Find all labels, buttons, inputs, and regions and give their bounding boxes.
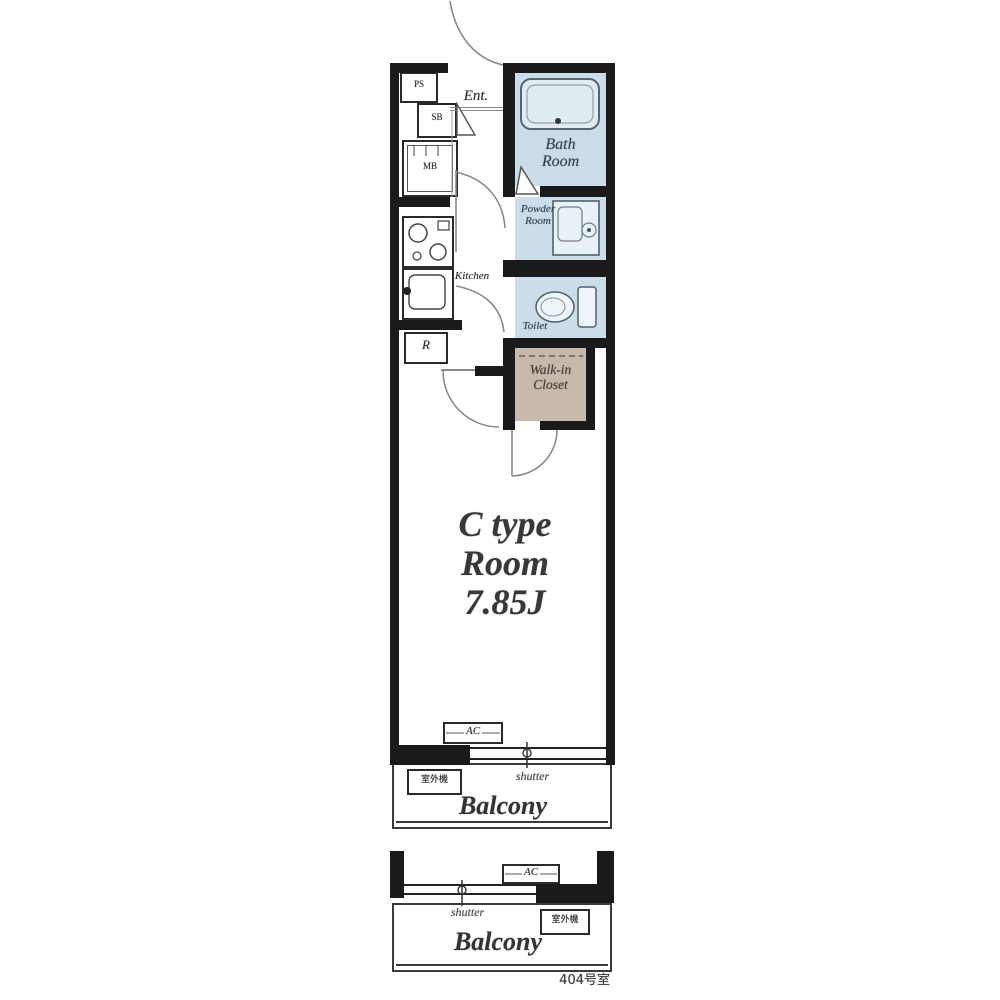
main-room-label-line2: Room xyxy=(415,544,595,583)
sb-label: SB xyxy=(417,113,457,123)
powder-room-label: Powder Room xyxy=(516,204,560,228)
ac-label-upper-text: AC xyxy=(464,725,482,737)
entrance-step xyxy=(450,107,505,111)
wall-lower-window-side xyxy=(536,884,612,903)
wall-top-right xyxy=(503,63,615,73)
wall-toilet-bottom xyxy=(503,338,615,348)
powder-door-arc xyxy=(456,172,505,228)
wic-door-arc xyxy=(512,430,557,476)
bath-room-label-line2: Room xyxy=(515,153,606,170)
lower-unit-window xyxy=(400,884,540,895)
shutter-label-upper: shutter xyxy=(495,770,570,783)
main-room-label-line3: 7.85J xyxy=(415,583,595,622)
wall-bottom-left xyxy=(390,745,470,765)
ps-label: PS xyxy=(400,80,438,90)
bath-room-label-line1: Bath xyxy=(515,136,606,153)
ac-label-lower-text: AC xyxy=(522,866,540,878)
wall-right xyxy=(606,65,615,765)
wall-wic-right xyxy=(586,348,595,423)
wall-kitchen-top xyxy=(390,197,450,207)
entrance-door-arc xyxy=(450,1,503,65)
main-room-window xyxy=(467,747,607,760)
outdoor-unit-label-lower: 室外機 xyxy=(540,916,590,926)
balcony-label-upper: Balcony xyxy=(428,792,578,820)
wall-hall-bath xyxy=(503,73,515,197)
powder-room-label-line2: Room xyxy=(516,216,560,228)
main-room-label-line1: C type xyxy=(415,505,595,544)
main-room-label: C type Room 7.85J xyxy=(415,505,595,622)
wall-wic-bottom xyxy=(540,421,595,430)
refrigerator-label: R xyxy=(404,338,448,352)
wall-bath-bottom xyxy=(540,186,615,197)
wall-lower-left-stub xyxy=(390,851,404,898)
ac-label-lower: AC xyxy=(502,867,560,879)
room-door-arc xyxy=(443,371,499,427)
fixtures-layer xyxy=(0,0,1000,1000)
wall-kitchen-bottom xyxy=(390,320,462,330)
balcony-lower-edge xyxy=(396,964,608,966)
walkin-closet-label: Walk-in Closet xyxy=(515,363,586,392)
outdoor-unit-label-upper: 室外機 xyxy=(407,776,462,786)
bath-room-label: Bath Room xyxy=(515,136,606,171)
kitchen-label: Kitchen xyxy=(443,271,501,283)
wall-left xyxy=(390,65,399,765)
entrance-label: Ent. xyxy=(452,88,500,104)
ac-label-upper: AC xyxy=(443,726,503,738)
walkin-closet-label-line1: Walk-in xyxy=(515,363,586,378)
balcony-label-lower: Balcony xyxy=(423,928,573,956)
stove-counter xyxy=(402,216,454,268)
wall-wic-left xyxy=(503,348,515,430)
wall-top-left xyxy=(390,63,448,73)
walkin-closet-label-line2: Closet xyxy=(515,378,586,393)
shutter-label-lower: shutter xyxy=(430,906,505,919)
wall-powder-toilet xyxy=(503,260,615,277)
floor-plan: PS SB MB Ent. Kitchen R Bath Room Powder… xyxy=(0,0,1000,1000)
meter-box-label: MB xyxy=(402,162,458,172)
wall-room-entry-stub xyxy=(475,366,507,376)
balcony-upper-edge xyxy=(396,821,608,823)
room-number-caption: 404号室 xyxy=(525,974,610,988)
hall-door-arc xyxy=(456,286,504,332)
toilet-label: Toilet xyxy=(514,321,556,333)
